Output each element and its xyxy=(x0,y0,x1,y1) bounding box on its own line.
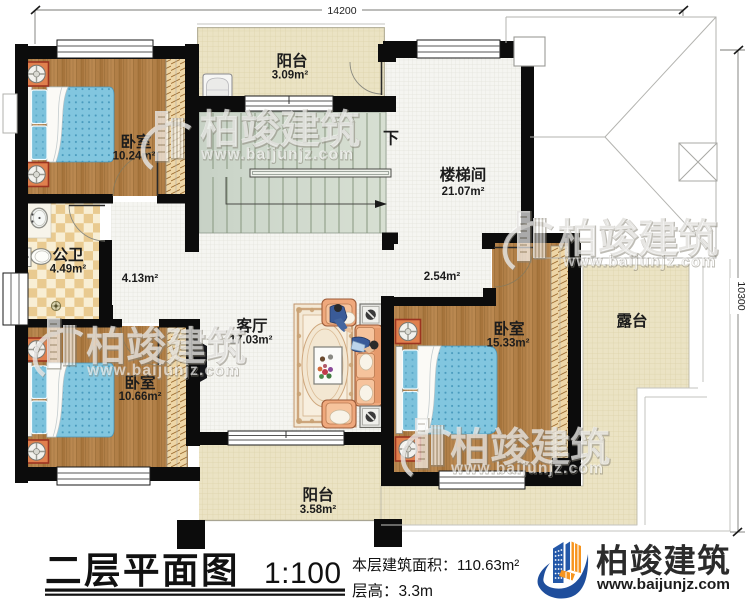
svg-text:10300: 10300 xyxy=(735,281,747,310)
svg-text:公卫: 公卫 xyxy=(52,246,84,264)
svg-text:10.24m²: 10.24m² xyxy=(113,151,156,163)
svg-text:下: 下 xyxy=(383,131,399,148)
svg-text:阳台: 阳台 xyxy=(302,485,333,504)
svg-text:15.33m²: 15.33m² xyxy=(487,338,530,350)
svg-text:www.baijunjz.com: www.baijunjz.com xyxy=(596,577,730,593)
svg-text:楼梯间: 楼梯间 xyxy=(440,165,487,184)
svg-text:14200: 14200 xyxy=(327,5,356,17)
svg-text:21.07m²: 21.07m² xyxy=(442,186,485,198)
svg-text:10.66m²: 10.66m² xyxy=(119,391,162,403)
svg-text:4.13m²: 4.13m² xyxy=(122,273,159,285)
svg-text:层高：3.3m: 层高：3.3m xyxy=(352,582,433,600)
svg-text:2.54m²: 2.54m² xyxy=(424,271,461,283)
svg-text:阳台: 阳台 xyxy=(276,51,307,70)
svg-text:卧室: 卧室 xyxy=(493,319,524,338)
svg-text:1:100: 1:100 xyxy=(264,557,342,590)
svg-text:露台: 露台 xyxy=(616,311,647,330)
svg-text:柏竣建筑: 柏竣建筑 xyxy=(596,542,731,579)
svg-text:3.09m²: 3.09m² xyxy=(272,70,309,82)
svg-text:本层建筑面积：110.63m²: 本层建筑面积：110.63m² xyxy=(352,557,519,574)
svg-text:二层平面图: 二层平面图 xyxy=(45,550,240,591)
svg-text:4.49m²: 4.49m² xyxy=(50,264,87,276)
svg-text:3.58m²: 3.58m² xyxy=(300,504,337,516)
